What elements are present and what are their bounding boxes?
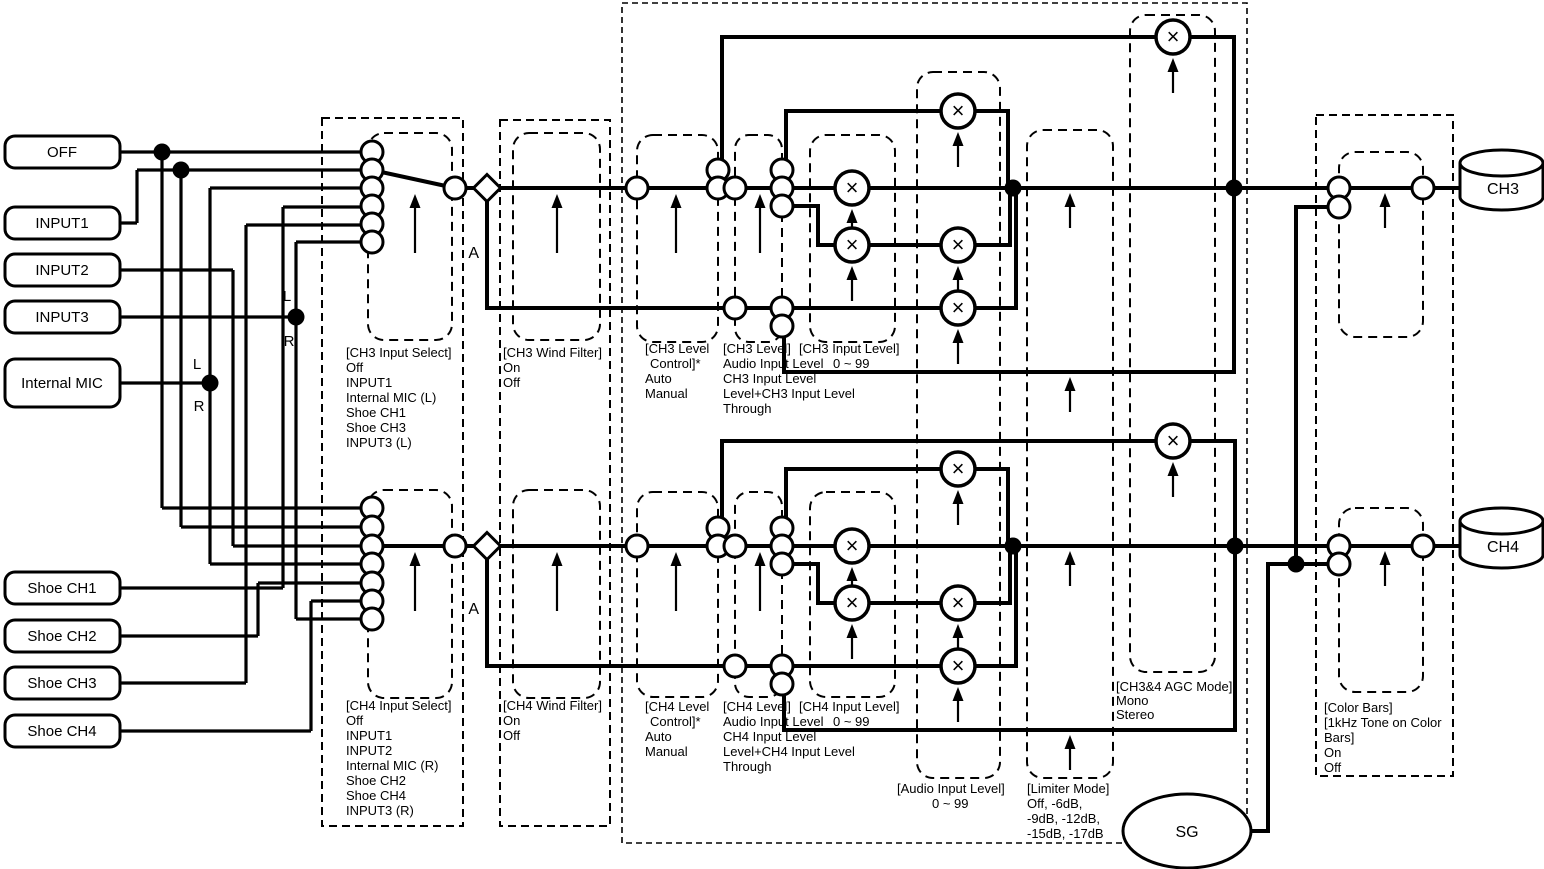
junction-dot xyxy=(173,162,190,179)
svg-text:On: On xyxy=(1324,745,1341,760)
connection-node xyxy=(724,535,746,557)
source-label: Shoe CH1 xyxy=(27,580,96,597)
svg-text:Shoe CH4: Shoe CH4 xyxy=(346,788,406,803)
up-arrow-icon xyxy=(755,552,766,611)
svg-text:×: × xyxy=(952,653,965,678)
signal-generator-label: SG xyxy=(1175,824,1198,841)
switch-diamond xyxy=(474,175,501,202)
svg-text:[CH4 Input Select]: [CH4 Input Select] xyxy=(346,698,452,713)
dashed-regions xyxy=(322,3,1453,843)
svg-text:0 ~ 99: 0 ~ 99 xyxy=(833,356,870,371)
svg-text:×: × xyxy=(952,456,965,481)
svg-text:[CH3 Input Select]: [CH3 Input Select] xyxy=(346,345,452,360)
svg-text:Shoe CH2: Shoe CH2 xyxy=(346,773,406,788)
up-arrow-icon xyxy=(953,329,964,364)
svg-text:Off: Off xyxy=(503,728,520,743)
source-label: INPUT1 xyxy=(35,215,88,232)
ch4-wind-filter-label: [CH4 Wind Filter] On Off xyxy=(503,698,602,743)
svg-text:×: × xyxy=(952,590,965,615)
right-channel-label: R xyxy=(194,398,205,415)
connection-node xyxy=(771,195,793,217)
connection-node xyxy=(1328,553,1350,575)
connection-node xyxy=(626,535,648,557)
multiplier-icon: × xyxy=(941,649,975,683)
svg-text:[CH3 Input Level]: [CH3 Input Level] xyxy=(799,341,899,356)
svg-text:[Limiter Mode]: [Limiter Mode] xyxy=(1027,781,1109,796)
agc-mode-label: [CH3&4 AGC Mode] Mono Stereo xyxy=(1116,679,1232,722)
svg-text:Through: Through xyxy=(723,759,771,774)
junction-dot xyxy=(1226,180,1243,197)
up-arrow-icon xyxy=(847,266,858,301)
source-box-shoe-ch3: Shoe CH3 xyxy=(5,667,120,699)
adjust-arrows xyxy=(410,58,1391,770)
tap-labels: L R L R A A xyxy=(193,245,480,618)
svg-text:[CH3&4 AGC Mode]: [CH3&4 AGC Mode] xyxy=(1116,679,1232,694)
ch4-output-label: CH4 xyxy=(1487,539,1519,556)
svg-text:Through: Through xyxy=(723,401,771,416)
connection-node xyxy=(1412,535,1434,557)
svg-text:-15dB, -17dB: -15dB, -17dB xyxy=(1027,826,1104,841)
up-arrow-icon xyxy=(1168,58,1179,93)
source-label: Shoe CH2 xyxy=(27,628,96,645)
junction-dot xyxy=(288,309,305,326)
left-channel-label: L xyxy=(283,288,291,305)
svg-text:INPUT1: INPUT1 xyxy=(346,375,392,390)
source-label: INPUT2 xyxy=(35,262,88,279)
svg-text:×: × xyxy=(846,533,859,558)
right-channel-label: R xyxy=(284,333,295,350)
svg-text:[CH3 Level: [CH3 Level xyxy=(645,341,709,356)
multiplier-icon: × xyxy=(941,228,975,262)
svg-text:Internal MIC (R): Internal MIC (R) xyxy=(346,758,438,773)
multiplier-icon: × xyxy=(941,291,975,325)
up-arrow-icon xyxy=(1168,462,1179,497)
junction-dot xyxy=(1288,556,1305,573)
svg-text:Shoe CH1: Shoe CH1 xyxy=(346,405,406,420)
connection-node xyxy=(1328,196,1350,218)
junction-dot xyxy=(1227,538,1244,555)
color-bars-label: [Color Bars] [1kHz Tone on Color Bars] O… xyxy=(1324,700,1442,775)
up-arrow-icon xyxy=(953,490,964,525)
svg-text:Off: Off xyxy=(346,713,363,728)
svg-text:Auto: Auto xyxy=(645,371,672,386)
connection-node xyxy=(1412,177,1434,199)
ch4-level-control-label: [CH4 Level Control]* Auto Manual xyxy=(645,699,709,759)
svg-text:0 ~ 99: 0 ~ 99 xyxy=(932,796,969,811)
svg-text:×: × xyxy=(846,232,859,257)
agc-mode-box xyxy=(1130,15,1215,672)
svg-text:Auto: Auto xyxy=(645,729,672,744)
connection-node xyxy=(444,535,466,557)
svg-text:×: × xyxy=(846,175,859,200)
up-arrow-icon xyxy=(410,552,421,611)
svg-text:[Color Bars]: [Color Bars] xyxy=(1324,700,1393,715)
svg-text:Level+CH3 Input Level: Level+CH3 Input Level xyxy=(723,386,855,401)
up-arrow-icon xyxy=(1065,377,1076,412)
source-label: OFF xyxy=(47,144,77,161)
switch-diamond xyxy=(474,533,501,560)
multiplier-icon: × xyxy=(941,452,975,486)
source-label: Shoe CH3 xyxy=(27,675,96,692)
up-arrow-icon xyxy=(953,132,964,167)
up-arrow-icon xyxy=(410,194,421,253)
source-box-shoe-ch1: Shoe CH1 xyxy=(5,572,120,604)
svg-text:[CH4 Level: [CH4 Level xyxy=(645,699,709,714)
svg-text:[CH3 Level]: [CH3 Level] xyxy=(723,341,791,356)
svg-text:×: × xyxy=(846,590,859,615)
svg-text:INPUT3 (L): INPUT3 (L) xyxy=(346,435,412,450)
connection-node xyxy=(444,177,466,199)
svg-text:On: On xyxy=(503,360,520,375)
connection-node xyxy=(724,177,746,199)
up-arrow-icon xyxy=(847,624,858,659)
branch-a-label: A xyxy=(468,601,479,618)
source-boxes: OFF INPUT1 INPUT2 INPUT3 Internal MIC Sh… xyxy=(5,136,120,747)
svg-text:[CH4 Input Level]: [CH4 Input Level] xyxy=(799,699,899,714)
svg-text:INPUT3 (R): INPUT3 (R) xyxy=(346,803,414,818)
left-channel-label: L xyxy=(193,356,201,373)
multiplier-icon: × xyxy=(941,94,975,128)
svg-text:Audio Input Level: Audio Input Level xyxy=(723,714,824,729)
up-arrow-icon xyxy=(1065,193,1076,228)
up-arrow-icon xyxy=(671,194,682,253)
svg-text:CH4 Input Level: CH4 Input Level xyxy=(723,729,816,744)
junction-dot xyxy=(1005,538,1022,555)
svg-text:INPUT1: INPUT1 xyxy=(346,728,392,743)
svg-text:Control]*: Control]* xyxy=(650,714,701,729)
svg-text:Off: Off xyxy=(1324,760,1341,775)
svg-text:×: × xyxy=(952,98,965,123)
svg-text:Off: Off xyxy=(503,375,520,390)
svg-text:×: × xyxy=(952,232,965,257)
source-box-shoe-ch4: Shoe CH4 xyxy=(5,715,120,747)
branch-a-label: A xyxy=(468,245,479,262)
audio-input-level-label: [Audio Input Level] 0 ~ 99 xyxy=(897,781,1005,811)
ch3-level-control-box xyxy=(637,135,718,342)
connection-node xyxy=(771,673,793,695)
limiter-mode-label: [Limiter Mode] Off, -6dB, -9dB, -12dB, -… xyxy=(1027,781,1109,841)
svg-text:0 ~ 99: 0 ~ 99 xyxy=(833,714,870,729)
ch3-output-label: CH3 xyxy=(1487,181,1519,198)
svg-text:[CH3 Wind Filter]: [CH3 Wind Filter] xyxy=(503,345,602,360)
multiplier-icon: × xyxy=(941,586,975,620)
svg-text:×: × xyxy=(1167,428,1180,453)
ch4-output-cylinder: CH4 xyxy=(1460,508,1543,568)
connection-node xyxy=(724,297,746,319)
up-arrow-icon xyxy=(552,194,563,253)
source-label: Internal MIC xyxy=(21,375,103,392)
up-arrow-icon xyxy=(552,552,563,611)
svg-text:-9dB, -12dB,: -9dB, -12dB, xyxy=(1027,811,1100,826)
source-label: Shoe CH4 xyxy=(27,723,96,740)
svg-text:Manual: Manual xyxy=(645,744,688,759)
svg-text:Shoe CH3: Shoe CH3 xyxy=(346,420,406,435)
multiplier-icon: × xyxy=(835,171,869,205)
junction-dot xyxy=(202,375,219,392)
source-box-internal-mic: Internal MIC xyxy=(5,359,120,407)
multiplier-icon: × xyxy=(835,228,869,262)
svg-text:Stereo: Stereo xyxy=(1116,707,1154,722)
svg-text:CH3 Input Level: CH3 Input Level xyxy=(723,371,816,386)
svg-text:[CH4 Wind Filter]: [CH4 Wind Filter] xyxy=(503,698,602,713)
source-label: INPUT3 xyxy=(35,309,88,326)
up-arrow-icon xyxy=(1065,735,1076,770)
svg-text:Mono: Mono xyxy=(1116,693,1149,708)
source-box-input2: INPUT2 xyxy=(5,254,120,286)
up-arrow-icon xyxy=(755,194,766,253)
source-box-off: OFF xyxy=(5,136,120,168)
connection-node xyxy=(724,655,746,677)
up-arrow-icon xyxy=(1380,193,1391,228)
ch3-input-select-label: [CH3 Input Select] Off INPUT1 Internal M… xyxy=(346,345,452,450)
source-wiring xyxy=(120,152,372,731)
ch3-output-cylinder: CH3 xyxy=(1460,150,1543,210)
source-box-input3: INPUT3 xyxy=(5,301,120,333)
multiplier-icon: × xyxy=(835,586,869,620)
svg-text:Control]*: Control]* xyxy=(650,356,701,371)
junction-dot xyxy=(1005,180,1022,197)
connection-node xyxy=(771,315,793,337)
up-arrow-icon xyxy=(953,687,964,722)
connection-nodes xyxy=(361,141,1434,695)
ch4-input-select-label: [CH4 Input Select] Off INPUT1 INPUT2 Int… xyxy=(346,698,452,818)
up-arrow-icon xyxy=(1065,551,1076,586)
svg-text:Level+CH4 Input Level: Level+CH4 Input Level xyxy=(723,744,855,759)
connection-node xyxy=(361,231,383,253)
ch3-color-bars-box xyxy=(1339,152,1423,337)
svg-text:[Audio Input Level]: [Audio Input Level] xyxy=(897,781,1005,796)
connection-node xyxy=(626,177,648,199)
svg-text:Manual: Manual xyxy=(645,386,688,401)
up-arrow-icon xyxy=(671,552,682,611)
junction-dot xyxy=(154,144,171,161)
svg-text:Off: Off xyxy=(346,360,363,375)
svg-text:Bars]: Bars] xyxy=(1324,730,1354,745)
multiplier-icon: × xyxy=(1156,20,1190,54)
source-box-input1: INPUT1 xyxy=(5,207,120,239)
ch4-color-bars-box xyxy=(1339,508,1423,692)
source-box-shoe-ch2: Shoe CH2 xyxy=(5,620,120,652)
connection-node xyxy=(771,553,793,575)
svg-text:INPUT2: INPUT2 xyxy=(346,743,392,758)
multiplier-icon: × xyxy=(835,529,869,563)
connection-node xyxy=(361,608,383,630)
svg-text:On: On xyxy=(503,713,520,728)
svg-text:×: × xyxy=(952,295,965,320)
multiplier-icon: × xyxy=(1156,424,1190,458)
svg-text:Off, -6dB,: Off, -6dB, xyxy=(1027,796,1082,811)
svg-text:[1kHz Tone on Color: [1kHz Tone on Color xyxy=(1324,715,1442,730)
ch3-level-control-label: [CH3 Level Control]* Auto Manual xyxy=(645,341,709,401)
svg-text:×: × xyxy=(1167,24,1180,49)
svg-text:[CH4 Level]: [CH4 Level] xyxy=(723,699,791,714)
up-arrow-icon xyxy=(1380,551,1391,586)
svg-text:Audio Input Level: Audio Input Level xyxy=(723,356,824,371)
audio-block-diagram: × × × × × × × × × × × × OFF INPUT1 INPUT… xyxy=(0,0,1544,869)
signal-generator: SG xyxy=(1123,794,1251,868)
svg-text:Internal MIC (L): Internal MIC (L) xyxy=(346,390,436,405)
ch3-wind-filter-label: [CH3 Wind Filter] On Off xyxy=(503,345,602,390)
